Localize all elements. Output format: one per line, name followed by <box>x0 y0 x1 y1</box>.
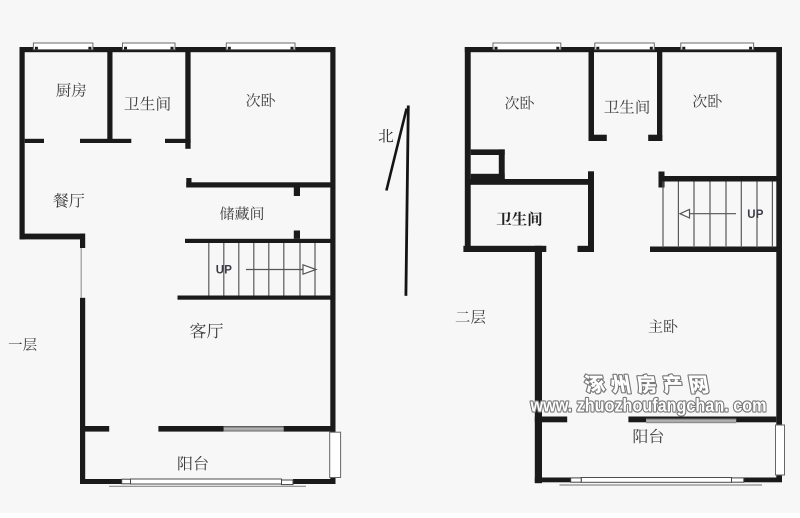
svg-text:UP: UP <box>747 209 764 221</box>
svg-text:UP: UP <box>216 265 233 277</box>
svg-text:www. zhuozhoufangchan. com: www. zhuozhoufangchan. com <box>530 396 767 416</box>
